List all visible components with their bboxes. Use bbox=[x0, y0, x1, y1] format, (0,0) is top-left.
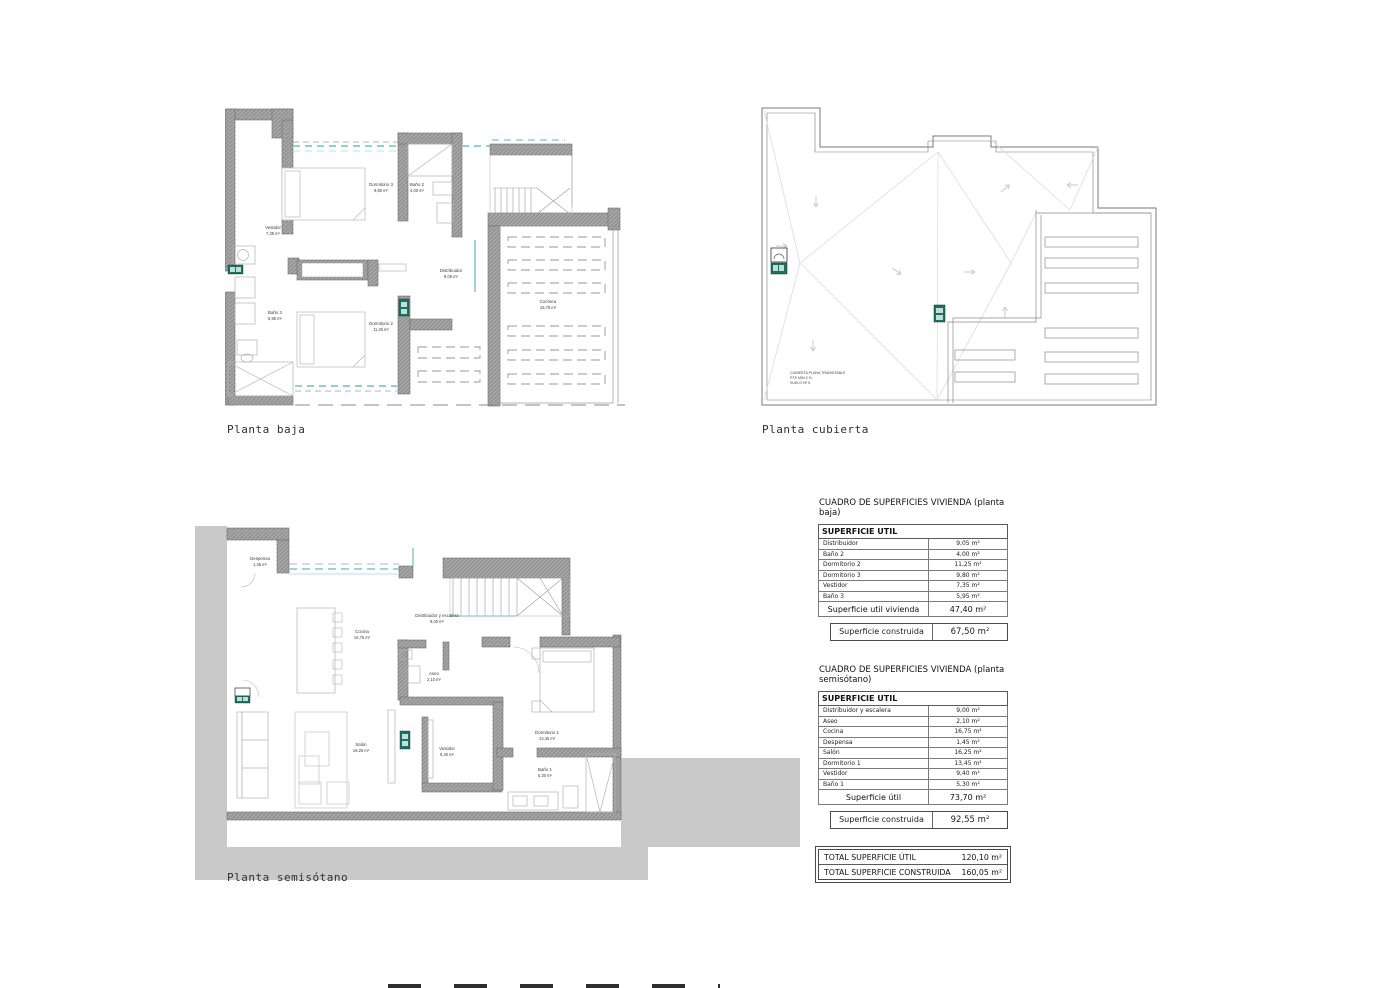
table-group-planta-baja: CUADRO DE SUPERFICIES VIVIENDA (planta b… bbox=[818, 498, 1018, 641]
table-row: Cocina16,75 m² bbox=[819, 727, 1008, 738]
superficie-util-table-baja: SUPERFICIE UTIL Distribuidor9,05 m² Baño… bbox=[818, 524, 1008, 617]
svg-text:Vestidor: Vestidor bbox=[265, 225, 281, 230]
walls bbox=[225, 109, 620, 406]
table-row: Salón16,25 m² bbox=[819, 748, 1008, 759]
reference-lines bbox=[289, 548, 413, 574]
table-group-planta-semisotano: CUADRO DE SUPERFICIES VIVIENDA (planta s… bbox=[818, 665, 1018, 829]
roof-annotation: CUBIERTA PLANA TRANSITABLE PTE MIN 2 % S… bbox=[790, 371, 846, 385]
title-planta-cubierta: Planta cubierta bbox=[762, 423, 869, 436]
svg-text:9,40 m²: 9,40 m² bbox=[440, 752, 455, 757]
svg-text:Cochera: Cochera bbox=[540, 299, 557, 304]
title-planta-baja: Planta baja bbox=[227, 423, 305, 436]
closet-dorm2 bbox=[302, 263, 363, 277]
svg-text:11,25 m²: 11,25 m² bbox=[373, 327, 389, 332]
shelf bbox=[379, 264, 406, 271]
svg-text:Cocina: Cocina bbox=[355, 629, 369, 634]
garage-grilles bbox=[418, 237, 605, 384]
table-row: Baño 24,00 m² bbox=[819, 549, 1008, 560]
svg-text:Baño 2: Baño 2 bbox=[410, 182, 424, 187]
table-row: Despensa1,45 m² bbox=[819, 737, 1008, 748]
drawing-sheet: Dormitorio 3 9,80 m² Baño 2 4,00 m² Vest… bbox=[0, 0, 1400, 988]
svg-text:5,30 m²: 5,30 m² bbox=[538, 773, 553, 778]
table-title: CUADRO DE SUPERFICIES VIVIENDA (planta s… bbox=[819, 665, 1018, 685]
table-row: Distribuidor9,05 m² bbox=[819, 539, 1008, 550]
total-util-row: TOTAL SUPERFICIE ÚTIL120,10 m² bbox=[819, 850, 1007, 865]
table-row: Dormitorio 39,80 m² bbox=[819, 570, 1008, 581]
svg-text:Baño 1: Baño 1 bbox=[538, 767, 552, 772]
svg-text:1,45 m²: 1,45 m² bbox=[253, 562, 268, 567]
svg-text:SUELO Nº 5: SUELO Nº 5 bbox=[790, 381, 810, 385]
door-arcs bbox=[241, 573, 539, 697]
deck-slats bbox=[955, 237, 1138, 384]
table-row: Dormitorio 211,25 m² bbox=[819, 560, 1008, 571]
roof-slope-lines bbox=[764, 110, 1098, 400]
roof-deck bbox=[948, 210, 1151, 403]
svg-text:CUBIERTA PLANA TRANSITABLE: CUBIERTA PLANA TRANSITABLE bbox=[790, 371, 846, 375]
table-row: Baño 15,30 m² bbox=[819, 779, 1008, 790]
table-title: CUADRO DE SUPERFICIES VIVIENDA (planta b… bbox=[819, 498, 1018, 518]
svg-text:Vestidor: Vestidor bbox=[439, 746, 455, 751]
svg-text:Despensa: Despensa bbox=[250, 556, 270, 561]
title-planta-semisotano: Planta semisótano bbox=[227, 871, 348, 884]
svg-text:Aseo: Aseo bbox=[429, 671, 440, 676]
svg-text:4,00 m²: 4,00 m² bbox=[410, 188, 425, 193]
garage bbox=[418, 213, 618, 403]
table-row: Vestidor9,40 m² bbox=[819, 769, 1008, 780]
svg-text:13,45 m²: 13,45 m² bbox=[539, 736, 556, 741]
table-row: Vestidor7,35 m² bbox=[819, 581, 1008, 592]
totals-box: TOTAL SUPERFICIE ÚTIL120,10 m² TOTAL SUP… bbox=[818, 849, 1008, 880]
superficie-util-table-semisotano: SUPERFICIE UTIL Distribuidor y escalera9… bbox=[818, 691, 1008, 805]
svg-text:9,80 m²: 9,80 m² bbox=[374, 188, 389, 193]
table-total-row: Superficie útil73,70 m² bbox=[819, 790, 1008, 805]
table-row: Aseo2,10 m² bbox=[819, 716, 1008, 727]
svg-text:Distribuidor y escalera: Distribuidor y escalera bbox=[415, 613, 459, 618]
window-marker-icon bbox=[400, 731, 410, 749]
table-total-row: Superficie util vivienda47,40 m² bbox=[819, 602, 1008, 617]
svg-text:16,75 m²: 16,75 m² bbox=[354, 635, 371, 640]
stairs bbox=[450, 578, 570, 616]
roof-outline bbox=[762, 108, 1156, 405]
svg-text:16,75 m²: 16,75 m² bbox=[540, 305, 557, 310]
svg-text:9,00 m²: 9,00 m² bbox=[430, 619, 445, 624]
table-row: Distribuidor y escalera9,00 m² bbox=[819, 706, 1008, 717]
floorplan-planta-baja: Dormitorio 3 9,80 m² Baño 2 4,00 m² Vest… bbox=[225, 100, 635, 420]
svg-text:Dormitorio 1: Dormitorio 1 bbox=[535, 730, 559, 735]
window-marker-icon bbox=[228, 265, 243, 274]
total-construida-row: TOTAL SUPERFICIE CONSTRUIDA160,05 m² bbox=[819, 865, 1007, 879]
svg-text:7,35 m²: 7,35 m² bbox=[266, 231, 281, 236]
svg-text:Dormitorio 2: Dormitorio 2 bbox=[369, 321, 393, 326]
svg-text:PTE MIN 2 %: PTE MIN 2 % bbox=[790, 376, 813, 380]
slope-arrow-icon bbox=[776, 182, 1078, 351]
table-row: Baño 35,95 m² bbox=[819, 591, 1008, 602]
svg-text:2,10 m²: 2,10 m² bbox=[427, 677, 442, 682]
surface-tables: CUADRO DE SUPERFICIES VIVIENDA (planta b… bbox=[818, 498, 1018, 880]
roofplan-planta-cubierta: CUBIERTA PLANA TRANSITABLE PTE MIN 2 % S… bbox=[758, 100, 1182, 412]
table-row: Dormitorio 113,45 m² bbox=[819, 758, 1008, 769]
stairs bbox=[490, 155, 572, 214]
superficie-construida-box: Superficie construida 92,55 m² bbox=[830, 811, 1008, 829]
svg-text:16,25 m²: 16,25 m² bbox=[353, 748, 370, 753]
floorplan-planta-semisotano: Despensa 1,45 m² Distribuidor y escalera… bbox=[195, 520, 807, 885]
svg-text:Baño 3: Baño 3 bbox=[268, 310, 282, 315]
skylight-icon bbox=[771, 248, 787, 274]
svg-text:Salón: Salón bbox=[355, 742, 367, 747]
scale-bar bbox=[388, 984, 720, 988]
svg-text:5,95 m²: 5,95 m² bbox=[268, 316, 283, 321]
svg-text:Dormitorio 3: Dormitorio 3 bbox=[369, 182, 393, 187]
svg-text:Distribuidor: Distribuidor bbox=[440, 268, 463, 273]
window-marker-icon bbox=[235, 688, 250, 703]
superficie-construida-box: Superficie construida 67,50 m² bbox=[830, 623, 1008, 641]
table-header: SUPERFICIE UTIL bbox=[819, 525, 1008, 539]
window-marker-icon bbox=[399, 299, 409, 316]
vent-marker-icon bbox=[934, 305, 945, 322]
svg-text:9,05 m²: 9,05 m² bbox=[444, 274, 459, 279]
table-header: SUPERFICIE UTIL bbox=[819, 692, 1008, 706]
